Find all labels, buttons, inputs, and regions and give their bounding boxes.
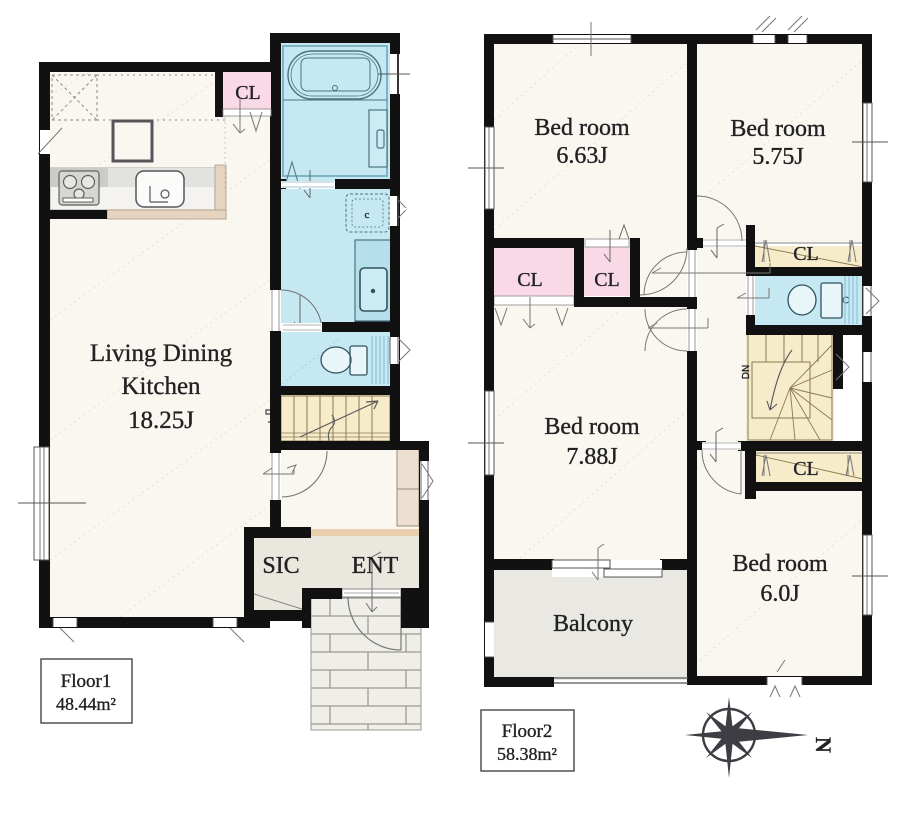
svg-text:SIC: SIC — [262, 553, 299, 579]
svg-text:Bed room: Bed room — [732, 551, 828, 577]
svg-text:c: c — [365, 209, 370, 221]
svg-text:ENT: ENT — [352, 553, 399, 579]
svg-text:48.44m²: 48.44m² — [56, 694, 116, 714]
svg-text:Kitchen: Kitchen — [121, 373, 201, 400]
svg-text:7.88J: 7.88J — [566, 444, 617, 470]
svg-text:N: N — [811, 737, 836, 753]
svg-text:6.63J: 6.63J — [556, 143, 607, 169]
svg-text:Bed room: Bed room — [544, 414, 640, 440]
svg-text:Living Dining: Living Dining — [90, 340, 233, 367]
svg-text:Balcony: Balcony — [553, 611, 633, 637]
svg-text:Floor2: Floor2 — [502, 721, 553, 742]
svg-text:CL: CL — [793, 458, 819, 480]
svg-text:Bed room: Bed room — [534, 115, 630, 141]
svg-text:5.75J: 5.75J — [752, 144, 803, 170]
svg-text:Bed room: Bed room — [730, 116, 826, 142]
svg-text:58.38m²: 58.38m² — [497, 744, 557, 764]
svg-text:CL: CL — [517, 269, 543, 291]
svg-text:6.0J: 6.0J — [760, 581, 799, 607]
svg-text:CL: CL — [594, 269, 620, 291]
svg-text:DN: DN — [741, 365, 752, 379]
svg-text:Floor1: Floor1 — [61, 671, 112, 692]
svg-text:18.25J: 18.25J — [128, 407, 194, 434]
svg-text:CL: CL — [235, 82, 261, 104]
svg-text:CL: CL — [793, 243, 819, 265]
